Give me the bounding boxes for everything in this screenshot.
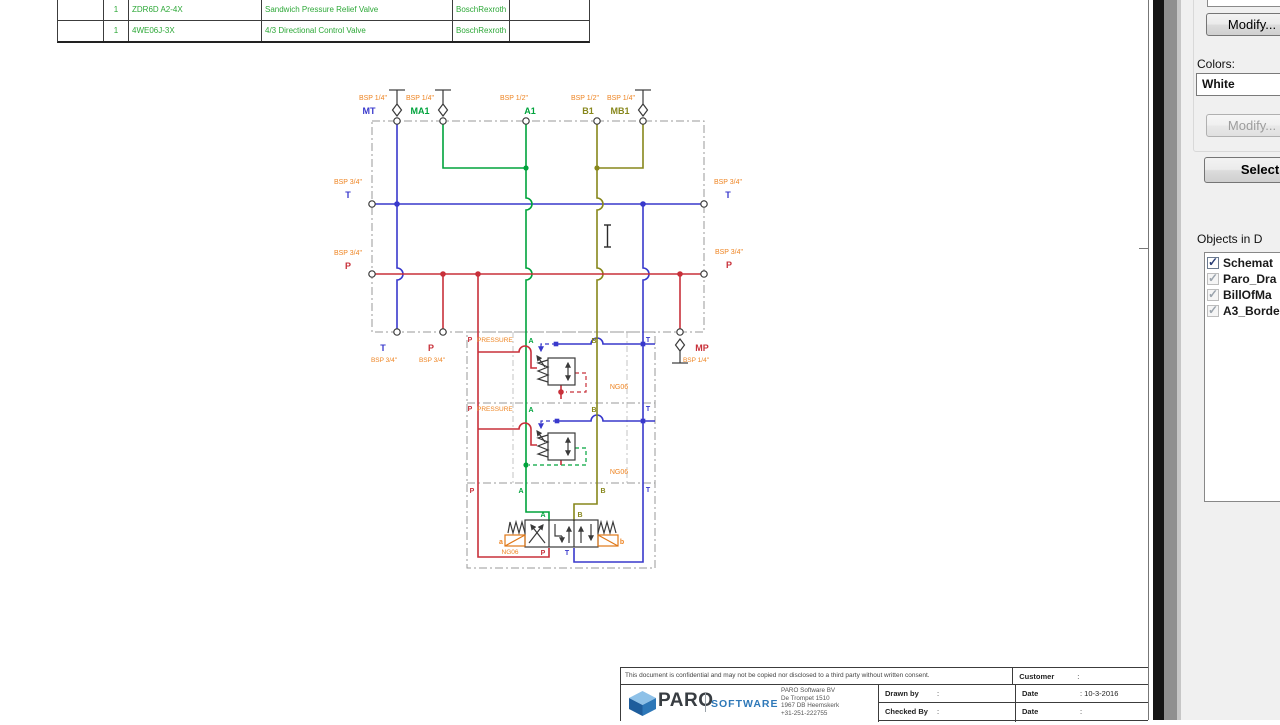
schematic-label: T [565, 550, 570, 557]
paro-logo-icon [629, 691, 656, 718]
schematic-label: PRESSURE [477, 337, 513, 344]
schematic-label: P [541, 550, 546, 557]
schematic-label: P [428, 343, 434, 353]
schematic-label: A [540, 512, 545, 519]
p-line [372, 274, 704, 557]
schematic-label: a [499, 539, 503, 546]
schematic-label: BSP 3/4" [419, 357, 446, 364]
schematic-label: B [591, 338, 596, 345]
sheet-border-line [1148, 0, 1149, 720]
schematic-label: BSP 1/4" [406, 95, 435, 102]
object-item-billofmaterials[interactable]: BillOfMa [1207, 287, 1280, 303]
bom-cell-description: Sandwich Pressure Relief Valve [262, 0, 453, 20]
b-line [574, 121, 643, 521]
company-address: PARO Software BV De Trompet 1510 1967 DB… [781, 687, 839, 717]
schematic-label: T [725, 190, 731, 200]
schematic-label: PRESSURE [477, 406, 513, 413]
color-select[interactable]: White [1196, 73, 1280, 96]
checkbox-checked-icon[interactable] [1207, 257, 1219, 269]
schematic-label: A [528, 407, 533, 414]
modify-color-button[interactable]: Modify... [1206, 114, 1280, 137]
hydraulic-schematic: BSP 1/4" MT BSP 1/4" MA1 BSP 1/2" A1 BSP… [0, 0, 1152, 720]
directional-valve [505, 520, 618, 547]
checkbox-checked-disabled-icon[interactable] [1207, 305, 1219, 317]
schematic-label: BSP 3/4" [334, 179, 363, 186]
window-divider [1153, 0, 1164, 720]
schematic-label: BSP 1/2" [500, 95, 529, 102]
sheet-border-tick [1139, 248, 1148, 249]
checkbox-checked-disabled-icon[interactable] [1207, 273, 1219, 285]
title-block: This document is confidential and may no… [620, 667, 1149, 721]
bom-cell-description: 4/3 Directional Control Valve [262, 20, 453, 41]
objects-listbox[interactable]: Schemat Paro_Dra BillOfMa A3_Borde [1204, 252, 1280, 502]
checkbox-checked-disabled-icon[interactable] [1207, 289, 1219, 301]
schematic-labels: BSP 1/4" MT BSP 1/4" MA1 BSP 1/2" A1 BSP… [334, 95, 744, 557]
object-item-paro-drawing[interactable]: Paro_Dra [1207, 271, 1280, 287]
schematic-label: BSP 1/4" [607, 95, 636, 102]
schematic-label: MT [363, 106, 376, 116]
port-circles [369, 118, 707, 335]
side-panel: Modify... Colors: White Modify... Select… [1181, 0, 1280, 720]
schematic-label: B [591, 407, 596, 414]
schematic-label: P [470, 488, 475, 495]
drawn-by-field: Drawn by: [879, 685, 1015, 703]
scrollbar-track [1164, 0, 1177, 720]
schematic-label: NG06 [502, 549, 519, 556]
schematic-label: P [468, 337, 473, 344]
schematic-label: B [600, 488, 605, 495]
manifold-outline [372, 121, 704, 332]
schematic-label: NG06 [610, 384, 628, 391]
text-cursor-ibeam [604, 225, 611, 247]
schematic-label: T [380, 343, 386, 353]
schematic-label: b [620, 539, 624, 546]
bom-cell-qty: 1 [104, 20, 129, 41]
schematic-label: T [345, 190, 351, 200]
schematic-label: BSP 1/2" [571, 95, 600, 102]
schematic-label: BSP 3/4" [715, 249, 744, 256]
schematic-label: T [646, 337, 651, 344]
confidentiality-note: This document is confidential and may no… [621, 668, 1013, 684]
bom-cell-qty: 1 [104, 0, 129, 20]
schematic-label: B [577, 512, 582, 519]
schematic-label: BSP 3/4" [371, 357, 398, 364]
a-line [443, 121, 586, 521]
select-button[interactable]: Select [1204, 157, 1280, 183]
customer-field: Customer: [1013, 668, 1149, 685]
bom-cell-empty [510, 20, 589, 41]
schematic-label: A [518, 488, 523, 495]
schematic-label: NG06 [610, 469, 628, 476]
schematic-label: MB1 [610, 106, 629, 116]
schematic-label: P [345, 261, 351, 271]
schematic-label: A1 [524, 106, 536, 116]
bom-cell-empty [58, 0, 104, 20]
date-field: Date: 10-3-2016 [1016, 685, 1148, 703]
junction-dots [394, 165, 683, 467]
schematic-label: P [726, 260, 732, 270]
bom-cell-manufacturer: BoschRexroth [453, 20, 510, 41]
objects-in-drawing-label: Objects in D [1197, 232, 1262, 246]
schematic-label: A [528, 338, 533, 345]
valve-block-outline [467, 332, 655, 568]
clipped-control [1207, 0, 1280, 7]
bom-cell-empty [510, 0, 589, 20]
t-line [372, 121, 704, 562]
schematic-label: B1 [582, 106, 594, 116]
schematic-label: BSP 3/4" [334, 250, 363, 257]
paro-logo-cell: PARO SOFTWARE PARO Software BV De Trompe… [621, 685, 879, 722]
bom-table: 1 ZDR6D A2-4X Sandwich Pressure Relief V… [57, 0, 590, 43]
drawing-canvas[interactable]: BSP 1/4" MT BSP 1/4" MA1 BSP 1/2" A1 BSP… [0, 0, 1152, 720]
checked-by-field: Checked By: [879, 703, 1015, 721]
schematic-label: BSP 3/4" [714, 179, 743, 186]
schematic-label: MP [695, 343, 709, 353]
paro-logo-subtext: SOFTWARE [711, 698, 779, 710]
schematic-label: MA1 [410, 106, 429, 116]
relief-valve-2 [537, 431, 575, 460]
schematic-label: T [646, 406, 651, 413]
object-item-schematic[interactable]: Schemat [1207, 255, 1280, 271]
schematic-label: BSP 1/4" [683, 357, 710, 364]
bom-cell-manufacturer: BoschRexroth [453, 0, 510, 20]
logo-divider [705, 693, 706, 712]
object-item-a3-border[interactable]: A3_Borde [1207, 303, 1280, 319]
bom-cell-model: 4WE06J-3X [129, 20, 262, 41]
colors-label: Colors: [1197, 57, 1235, 71]
schematic-label: P [468, 406, 473, 413]
relief-valve-1 [537, 356, 575, 385]
modify-button[interactable]: Modify... [1206, 13, 1280, 36]
schematic-label: T [646, 487, 651, 494]
bom-cell-model: ZDR6D A2-4X [129, 0, 262, 20]
schematic-label: BSP 1/4" [359, 95, 388, 102]
date-field: Date: [1016, 703, 1148, 721]
bom-cell-empty [58, 20, 104, 41]
